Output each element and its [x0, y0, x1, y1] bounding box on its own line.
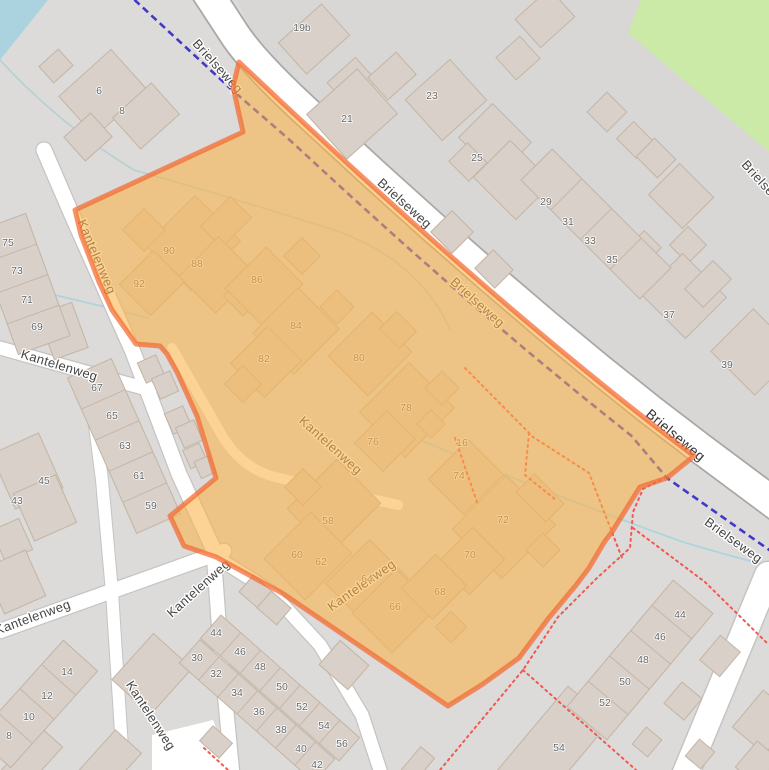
svg-text:48: 48	[254, 661, 266, 673]
svg-text:67: 67	[91, 382, 103, 394]
svg-text:25: 25	[471, 152, 483, 164]
svg-text:44: 44	[210, 627, 222, 639]
svg-text:36: 36	[253, 706, 265, 718]
svg-text:46: 46	[654, 631, 666, 643]
svg-text:23: 23	[426, 90, 438, 102]
svg-text:52: 52	[296, 701, 308, 713]
svg-text:6: 6	[96, 85, 102, 97]
svg-text:71: 71	[21, 294, 33, 306]
svg-text:19b: 19b	[293, 22, 311, 34]
svg-text:29: 29	[540, 196, 552, 208]
svg-text:65: 65	[106, 410, 118, 422]
svg-text:14: 14	[61, 666, 73, 678]
svg-text:43: 43	[11, 495, 23, 507]
svg-text:8: 8	[119, 105, 125, 117]
svg-text:33: 33	[584, 235, 596, 247]
svg-text:50: 50	[276, 681, 288, 693]
svg-text:45: 45	[38, 475, 50, 487]
svg-text:12: 12	[41, 690, 53, 702]
svg-text:56: 56	[336, 738, 348, 750]
svg-text:73: 73	[11, 265, 23, 277]
svg-text:52: 52	[599, 697, 611, 709]
svg-text:46: 46	[234, 646, 246, 658]
svg-text:69: 69	[31, 321, 43, 333]
svg-text:48: 48	[637, 654, 649, 666]
svg-text:39: 39	[721, 359, 733, 371]
svg-text:21: 21	[341, 113, 353, 125]
svg-text:34: 34	[231, 687, 243, 699]
svg-text:32: 32	[210, 668, 222, 680]
svg-text:54: 54	[318, 720, 330, 732]
svg-text:35: 35	[606, 254, 618, 266]
svg-text:37: 37	[663, 309, 675, 321]
svg-text:8: 8	[6, 730, 12, 742]
svg-text:50: 50	[619, 676, 631, 688]
svg-text:40: 40	[295, 743, 307, 755]
svg-text:42: 42	[311, 759, 323, 770]
svg-text:63: 63	[119, 440, 131, 452]
svg-text:59: 59	[145, 500, 157, 512]
svg-text:31: 31	[562, 216, 574, 228]
svg-text:38: 38	[275, 724, 287, 736]
svg-text:54: 54	[553, 742, 565, 754]
svg-text:30: 30	[191, 652, 203, 664]
svg-text:61: 61	[133, 470, 145, 482]
svg-text:44: 44	[674, 609, 686, 621]
svg-text:10: 10	[23, 711, 35, 723]
svg-text:75: 75	[2, 237, 14, 249]
